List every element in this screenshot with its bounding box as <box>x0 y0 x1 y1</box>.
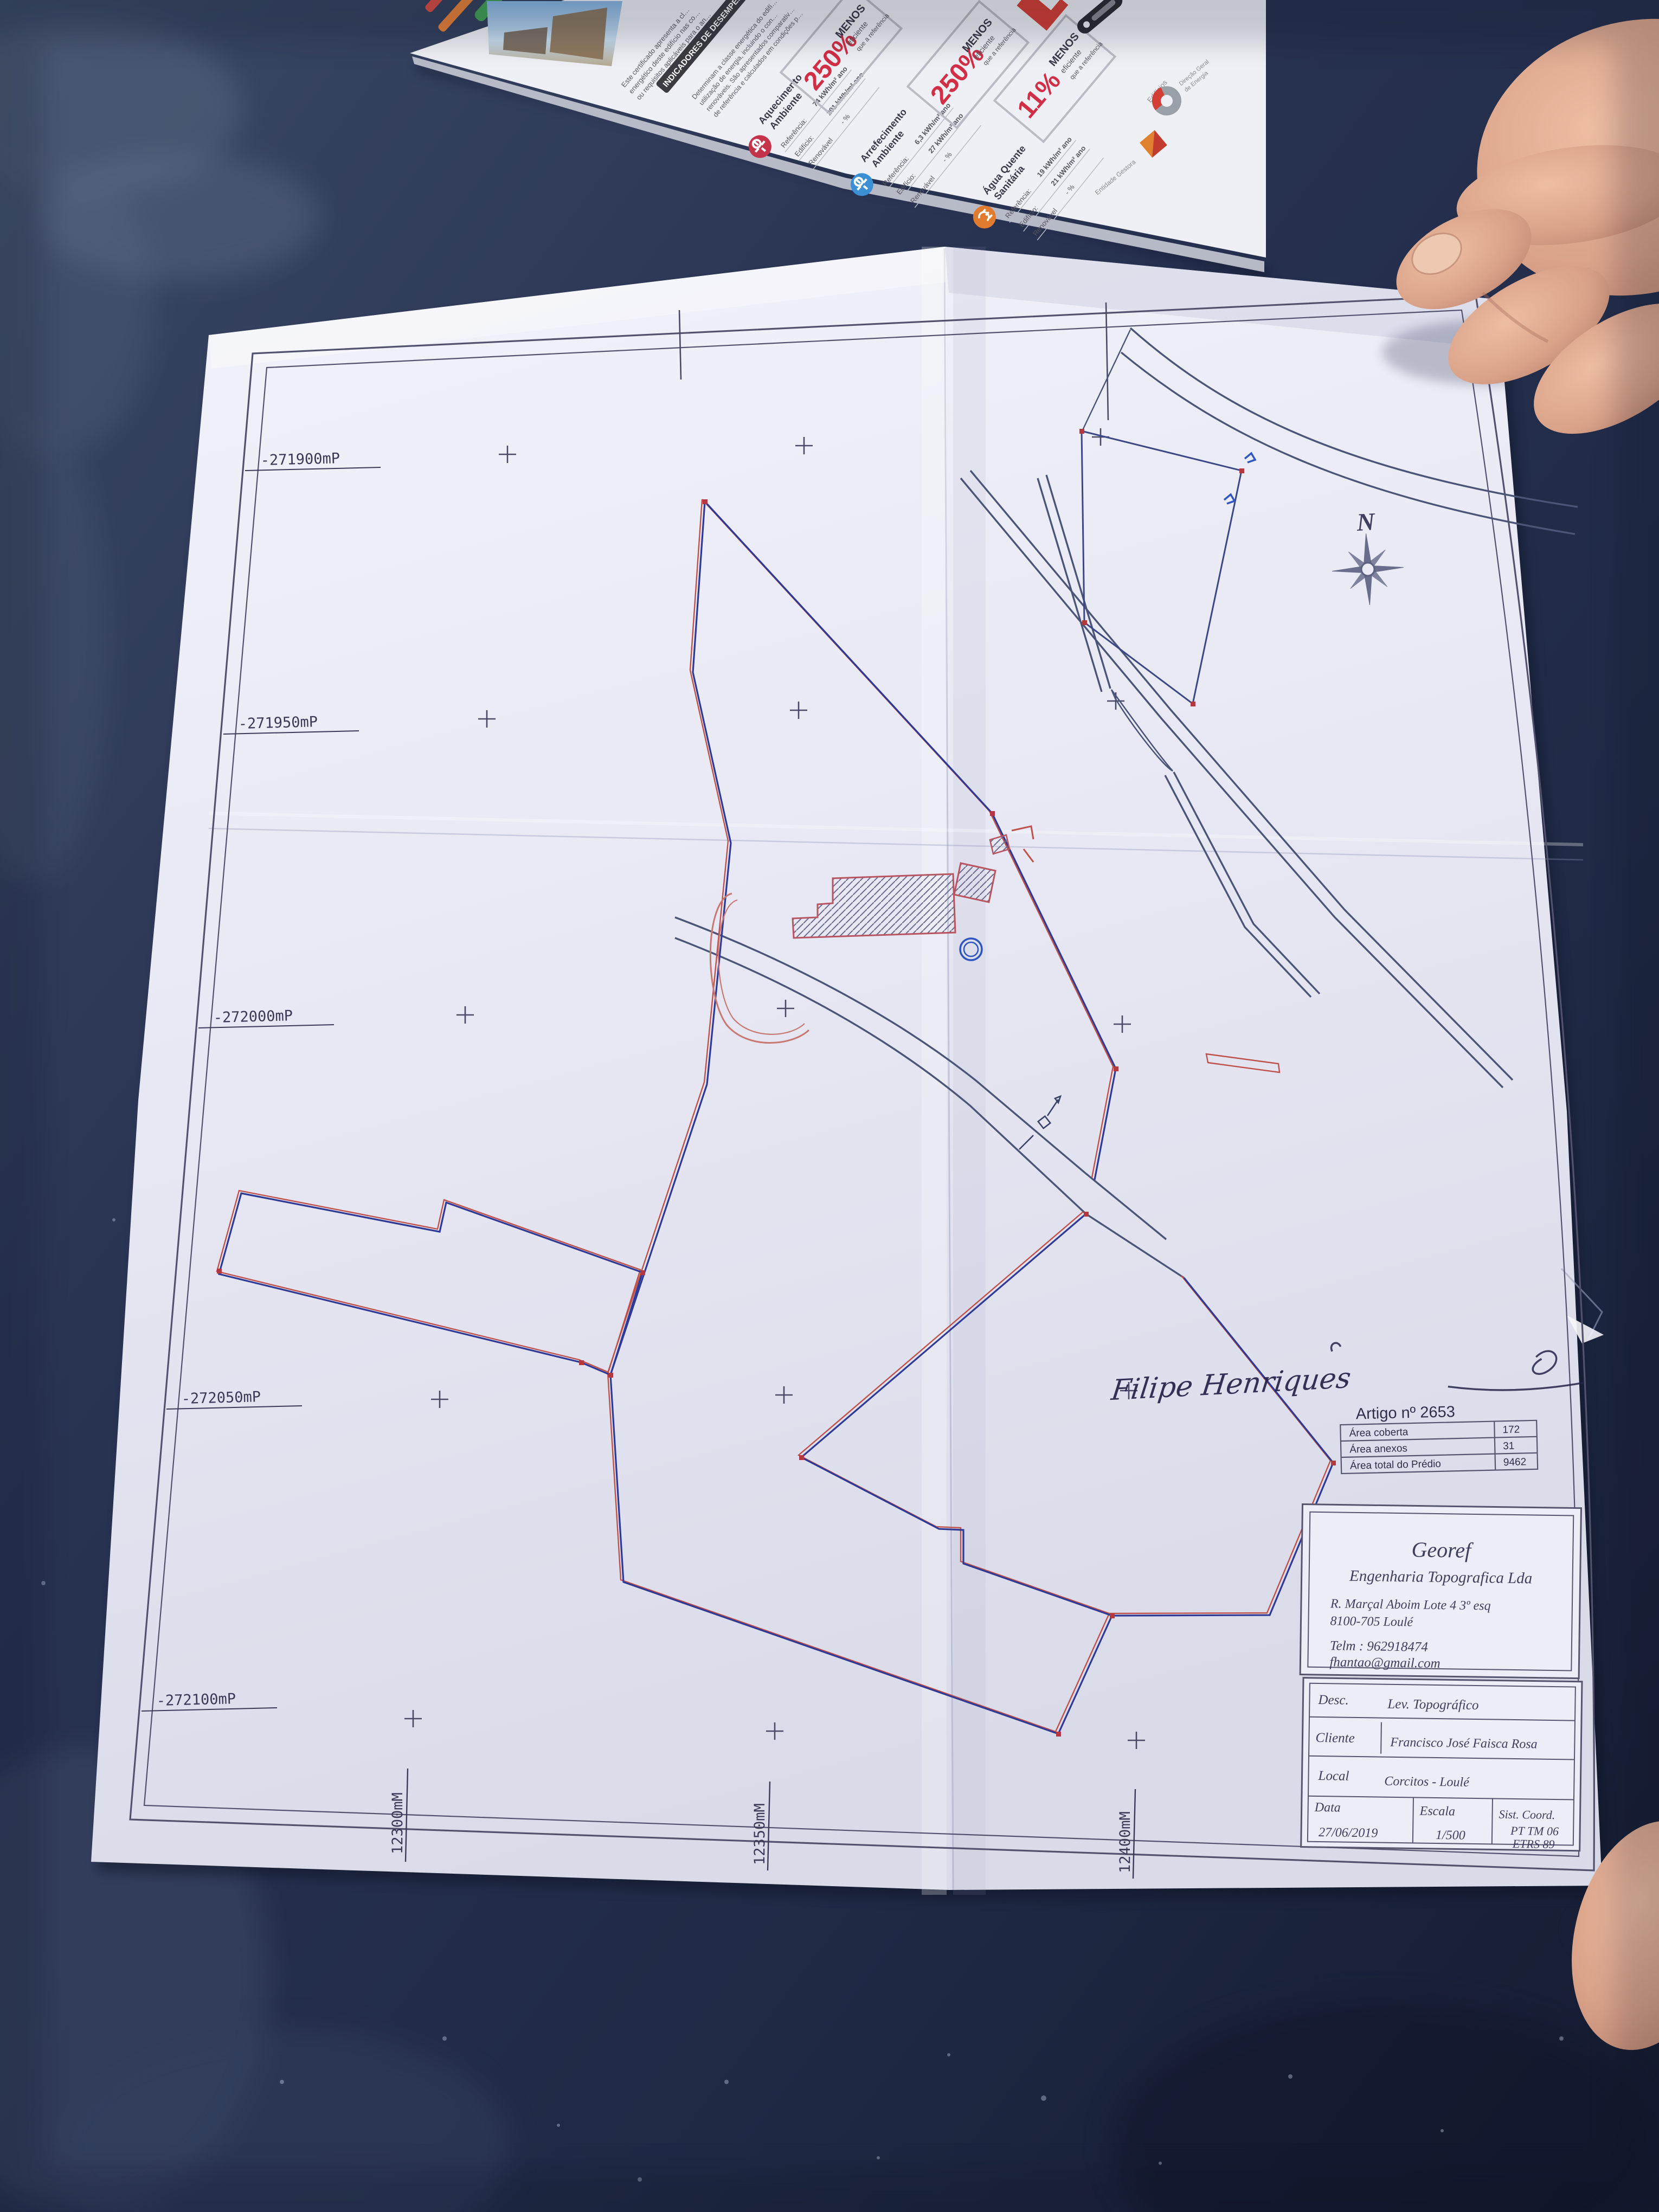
photo-scene: Este certificado apresenta a cl… energét… <box>0 0 1659 2212</box>
artigo-row-value: 9462 <box>1503 1456 1527 1468</box>
local-value: Corcitos - Loulé <box>1384 1774 1470 1790</box>
company-name: Georef <box>1411 1537 1474 1562</box>
artigo-row-label: Área total do Prédio <box>1350 1458 1441 1472</box>
coord-label: -272000mP <box>213 1007 293 1026</box>
cliente-value: Francisco José Faisca Rosa <box>1390 1735 1538 1752</box>
data-label: Data <box>1314 1801 1341 1815</box>
coord-label: 12350mM <box>751 1803 768 1865</box>
company-address: R. Marçal Aboim Lote 4 3º esq <box>1330 1597 1491 1613</box>
company-subtitle: Engenharia Topografica Lda <box>1349 1567 1533 1587</box>
north-label: N <box>1355 507 1377 536</box>
desc-value: Lev. Topográfico <box>1387 1697 1478 1713</box>
company-email: fhantao@gmail.com <box>1329 1655 1441 1671</box>
sist-coord-value: PT TM 06 <box>1510 1824 1559 1838</box>
artigo-row-value: 172 <box>1502 1424 1520 1436</box>
escala-value: 1/500 <box>1436 1828 1465 1843</box>
artigo-row-label: Área coberta <box>1349 1426 1409 1439</box>
desc-label: Desc. <box>1317 1693 1349 1708</box>
local-label: Local <box>1317 1769 1349 1784</box>
artigo-title: Artigo nº 2653 <box>1355 1403 1455 1423</box>
artigo-row-label: Área anexos <box>1349 1443 1407 1455</box>
water-stain <box>38 152 320 282</box>
coord-label: -271950mP <box>238 713 318 732</box>
coord-label: -272050mP <box>181 1388 261 1407</box>
escala-label: Escala <box>1419 1804 1455 1819</box>
cliente-label: Cliente <box>1315 1731 1355 1746</box>
coord-label: -272100mP <box>156 1690 236 1709</box>
coord-label: 12400mM <box>1117 1811 1134 1873</box>
data-value: 27/06/2019 <box>1319 1825 1378 1841</box>
sist-coord-value: ETRS 89 <box>1512 1837 1555 1851</box>
company-address: 8100-705 Loulé <box>1330 1614 1413 1629</box>
coord-label: 12300mM <box>389 1792 406 1854</box>
sist-coord-label: Sist. Coord. <box>1499 1808 1555 1822</box>
company-phone: Telm : 962918474 <box>1330 1638 1428 1655</box>
artigo-row-value: 31 <box>1503 1441 1515 1452</box>
coord-label: -271900mP <box>260 450 340 469</box>
annex-building <box>954 863 995 902</box>
